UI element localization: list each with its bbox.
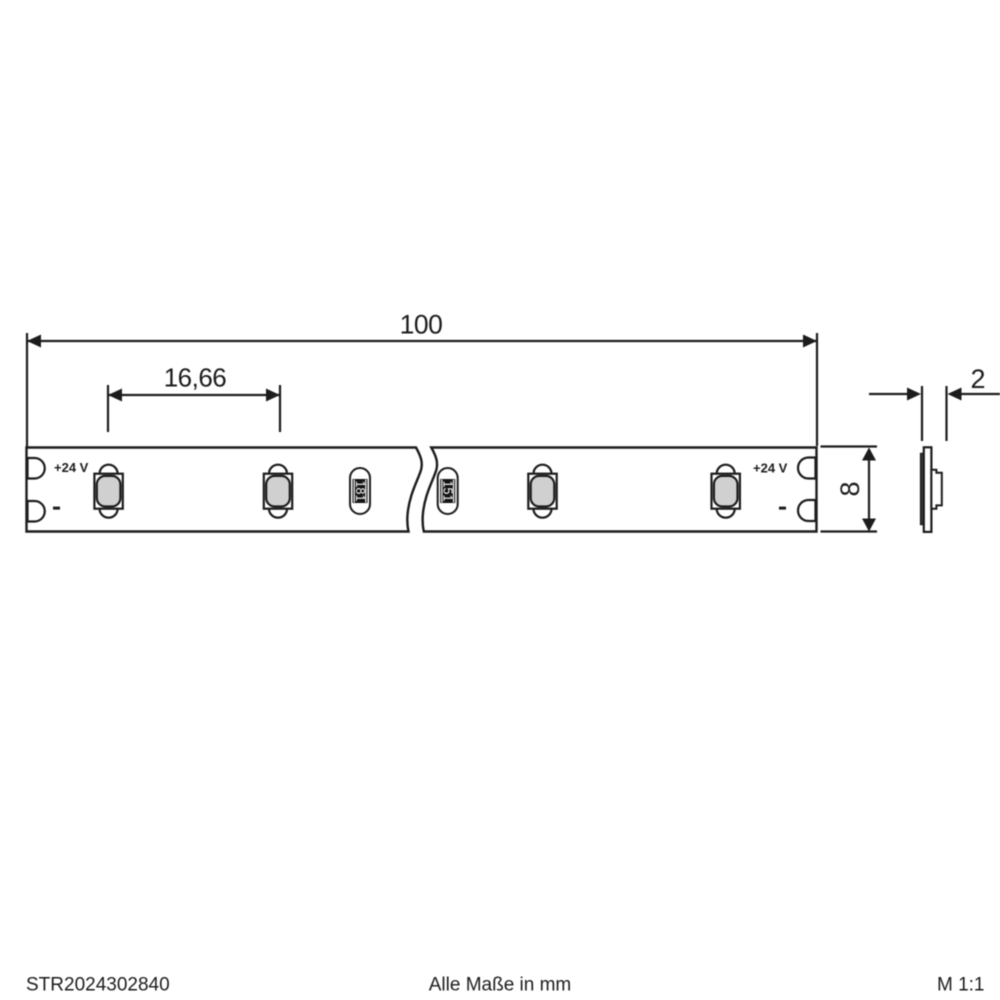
svg-text:Alle Maße in mm: Alle Maße in mm	[429, 975, 572, 996]
svg-text:2: 2	[970, 364, 985, 394]
svg-text:+24 V: +24 V	[54, 460, 89, 475]
svg-text:8: 8	[835, 481, 865, 496]
svg-text:16,66: 16,66	[164, 363, 227, 393]
svg-text:181: 181	[353, 481, 367, 502]
svg-text:M 1:1: M 1:1	[937, 975, 985, 996]
svg-text:STR2024302840: STR2024302840	[26, 975, 170, 996]
svg-text:151: 151	[441, 481, 455, 502]
svg-text:100: 100	[400, 310, 443, 340]
svg-text:+24 V: +24 V	[753, 461, 788, 476]
